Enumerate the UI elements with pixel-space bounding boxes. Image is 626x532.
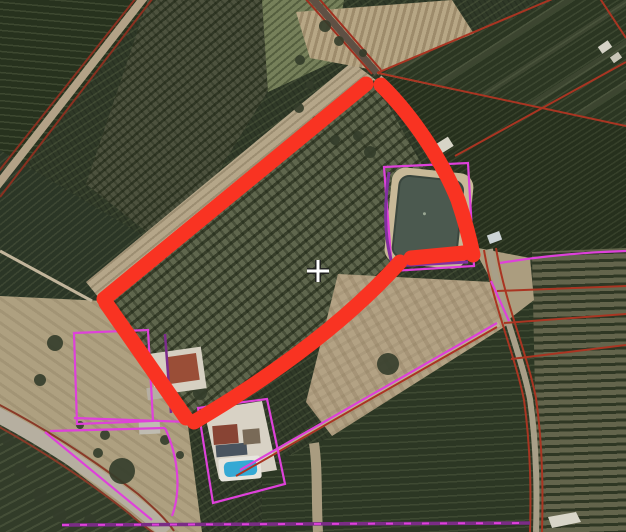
- shed: [610, 52, 622, 63]
- cadastral-line: [511, 345, 626, 359]
- villa-roof-brown: [242, 428, 260, 444]
- tree: [295, 55, 305, 65]
- urban-parcel-line: [45, 432, 152, 520]
- tree: [100, 430, 110, 440]
- tree: [353, 131, 363, 141]
- road-topleft: [0, 0, 146, 191]
- tree: [34, 374, 46, 386]
- cadastral-line: [377, 0, 557, 73]
- tree: [306, 81, 314, 89]
- tree: [319, 20, 331, 32]
- selection-segment[interactable]: [411, 253, 464, 258]
- cadastral-line: [497, 286, 626, 291]
- tree: [53, 508, 67, 522]
- farmhouse-roof: [166, 353, 199, 384]
- urban-parcel-line: [240, 323, 497, 470]
- urban-parcel-line: [500, 251, 626, 263]
- tree: [364, 146, 376, 158]
- tree: [359, 49, 367, 57]
- tree: [109, 458, 135, 484]
- tree: [330, 135, 340, 145]
- road-topleft-edge: [0, 0, 153, 197]
- tree: [176, 451, 184, 459]
- tree: [294, 103, 304, 113]
- tree: [377, 353, 399, 375]
- road-right-edge: [484, 250, 530, 532]
- tree: [13, 463, 27, 477]
- cadastral-line: [236, 327, 497, 476]
- shed: [487, 231, 502, 244]
- tree: [334, 36, 344, 46]
- track-topcenter: [309, 0, 377, 73]
- shed: [598, 40, 612, 53]
- cadastral-line: [599, 0, 626, 38]
- selection-segment[interactable]: [104, 84, 366, 299]
- tree: [93, 448, 103, 458]
- tree: [2, 434, 14, 446]
- track-orchard-gap: [314, 443, 318, 532]
- tree: [33, 488, 47, 502]
- track-patch: [548, 512, 581, 528]
- tree: [47, 335, 63, 351]
- map-canvas[interactable]: [0, 0, 626, 532]
- track-left: [0, 251, 92, 301]
- overlay-svg: [0, 0, 626, 532]
- villa-roof-red: [212, 424, 239, 445]
- cadastral-line: [455, 62, 626, 156]
- cadastral-line: [504, 314, 626, 323]
